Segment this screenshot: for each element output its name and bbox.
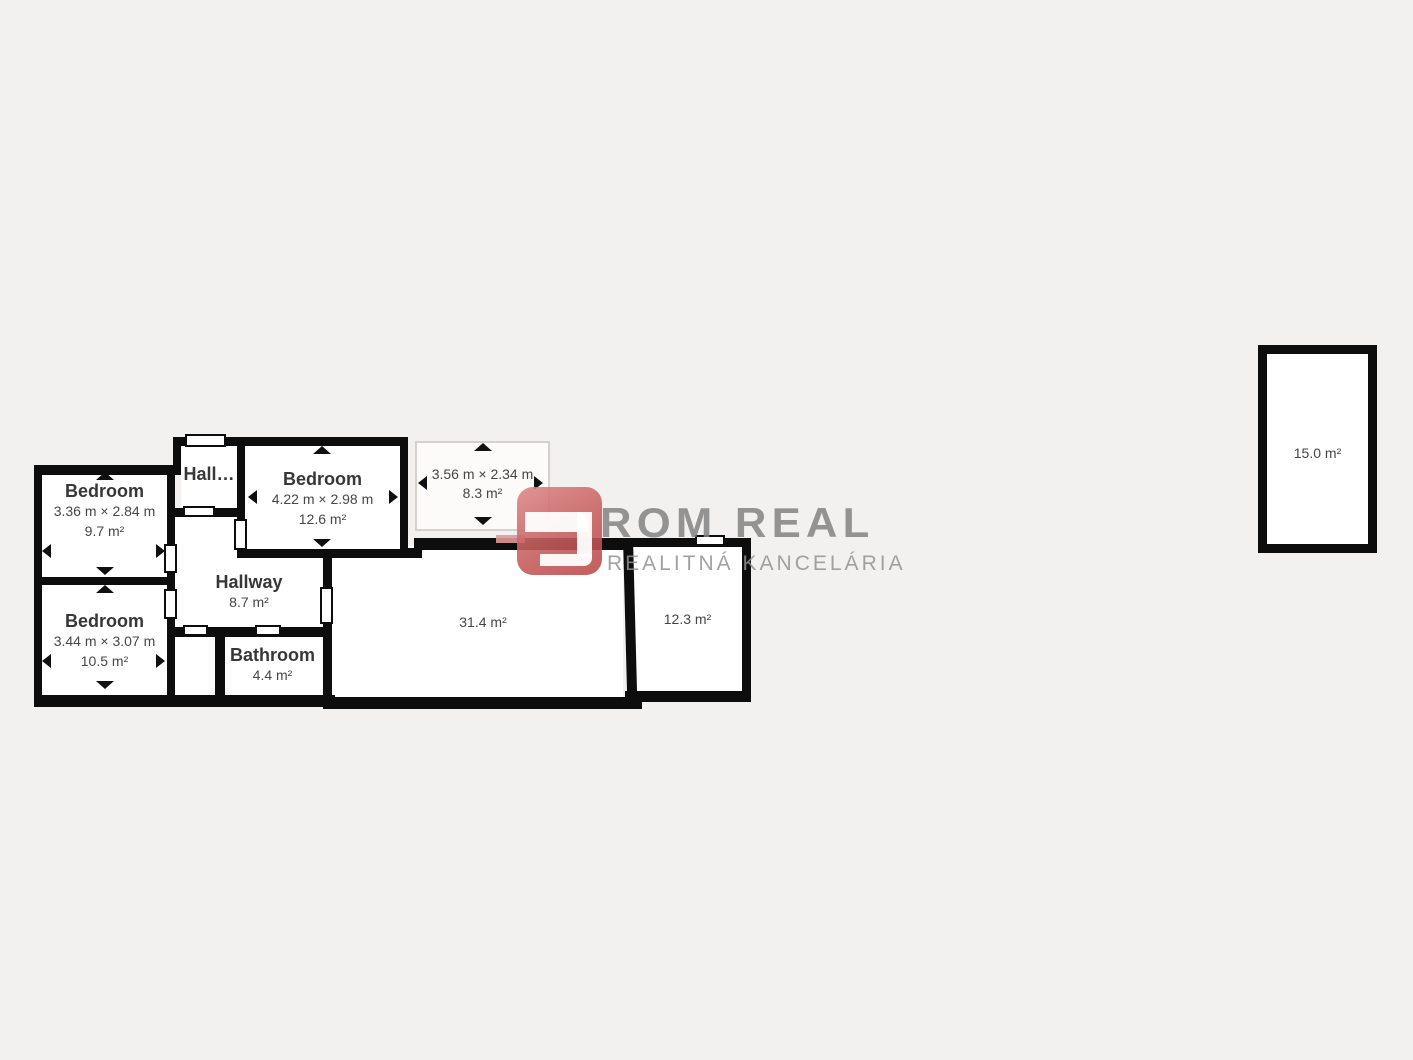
room-dimensions: 3.44 m × 3.07 m <box>42 632 167 652</box>
room-area: 15.0 m² <box>1267 444 1368 463</box>
room-name: Hall… <box>181 464 237 485</box>
room-name: Bedroom <box>42 611 167 632</box>
door-opening <box>255 625 281 636</box>
room-area: 10.5 m² <box>42 652 167 672</box>
label-hallway: Hallway 8.7 m² <box>175 572 323 613</box>
wall <box>34 577 175 585</box>
door-opening <box>164 544 177 573</box>
watermark-brand-text: ROM REAL <box>600 503 875 543</box>
dim-arrow-down-icon <box>96 681 114 689</box>
wall <box>34 465 42 707</box>
room-name: Bedroom <box>245 469 400 490</box>
dim-arrow-right-icon <box>156 544 165 558</box>
room-name: Hallway <box>175 572 323 593</box>
room-area: 8.7 m² <box>175 593 323 613</box>
dim-arrow-down-icon <box>474 517 492 525</box>
wall <box>742 538 751 700</box>
wall <box>625 691 751 702</box>
dim-arrow-up-icon <box>474 443 492 451</box>
room-name: Bathroom <box>225 645 320 666</box>
label-hall-small: Hall… <box>181 464 237 485</box>
dim-arrow-left-icon <box>248 490 257 504</box>
dim-arrow-left-icon <box>418 476 427 490</box>
floor-plan-canvas: 15.0 m² Bedroom 3.36 m × 2.84 m 9.7 m² B… <box>0 0 1413 1060</box>
label-bedroom-c: Bedroom 4.22 m × 2.98 m 12.6 m² <box>245 469 400 529</box>
wall <box>173 437 181 475</box>
dim-arrow-up-icon <box>96 585 114 593</box>
room-name: Bedroom <box>42 481 167 502</box>
dim-arrow-down-icon <box>313 539 331 547</box>
dim-arrow-left-icon <box>42 544 51 558</box>
label-living: 31.4 m² <box>332 613 634 632</box>
room-area: 9.7 m² <box>42 522 167 542</box>
window-opening <box>695 535 725 546</box>
wall <box>323 697 642 709</box>
wall <box>167 465 175 707</box>
room-closet <box>175 637 215 695</box>
label-bathroom: Bathroom 4.4 m² <box>225 645 320 686</box>
label-detached: 15.0 m² <box>1267 444 1368 463</box>
dim-arrow-down-icon <box>96 567 114 575</box>
wall <box>414 538 633 550</box>
room-detached: 15.0 m² <box>1258 345 1377 553</box>
dim-arrow-right-icon <box>389 490 398 504</box>
room-area: 8.3 m² <box>415 484 550 503</box>
room-dimensions: 4.22 m × 2.98 m <box>245 490 400 510</box>
label-balcony: 3.56 m × 2.34 m 8.3 m² <box>415 465 550 503</box>
dim-arrow-up-icon <box>313 446 331 454</box>
window-opening <box>185 434 226 447</box>
room-dimensions: 3.36 m × 2.84 m <box>42 502 167 522</box>
room-area: 12.6 m² <box>245 510 400 530</box>
room-dimensions: 3.56 m × 2.34 m <box>415 465 550 484</box>
room-area: 12.3 m² <box>633 610 742 629</box>
wall <box>215 637 225 697</box>
room-area: 31.4 m² <box>332 613 634 632</box>
wall <box>34 695 335 707</box>
door-opening <box>183 506 215 517</box>
dim-arrow-left-icon <box>42 654 51 668</box>
dim-arrow-right-icon <box>156 654 165 668</box>
wall <box>633 538 750 547</box>
wall <box>406 548 422 558</box>
label-bedroom-a: Bedroom 3.36 m × 2.84 m 9.7 m² <box>42 481 167 541</box>
dim-arrow-right-icon <box>534 476 543 490</box>
dim-arrow-up-icon <box>96 472 114 480</box>
door-opening <box>183 625 208 636</box>
label-room-right: 12.3 m² <box>633 610 742 629</box>
wall <box>400 437 408 558</box>
label-bedroom-b: Bedroom 3.44 m × 3.07 m 10.5 m² <box>42 611 167 671</box>
room-area: 4.4 m² <box>225 666 320 686</box>
